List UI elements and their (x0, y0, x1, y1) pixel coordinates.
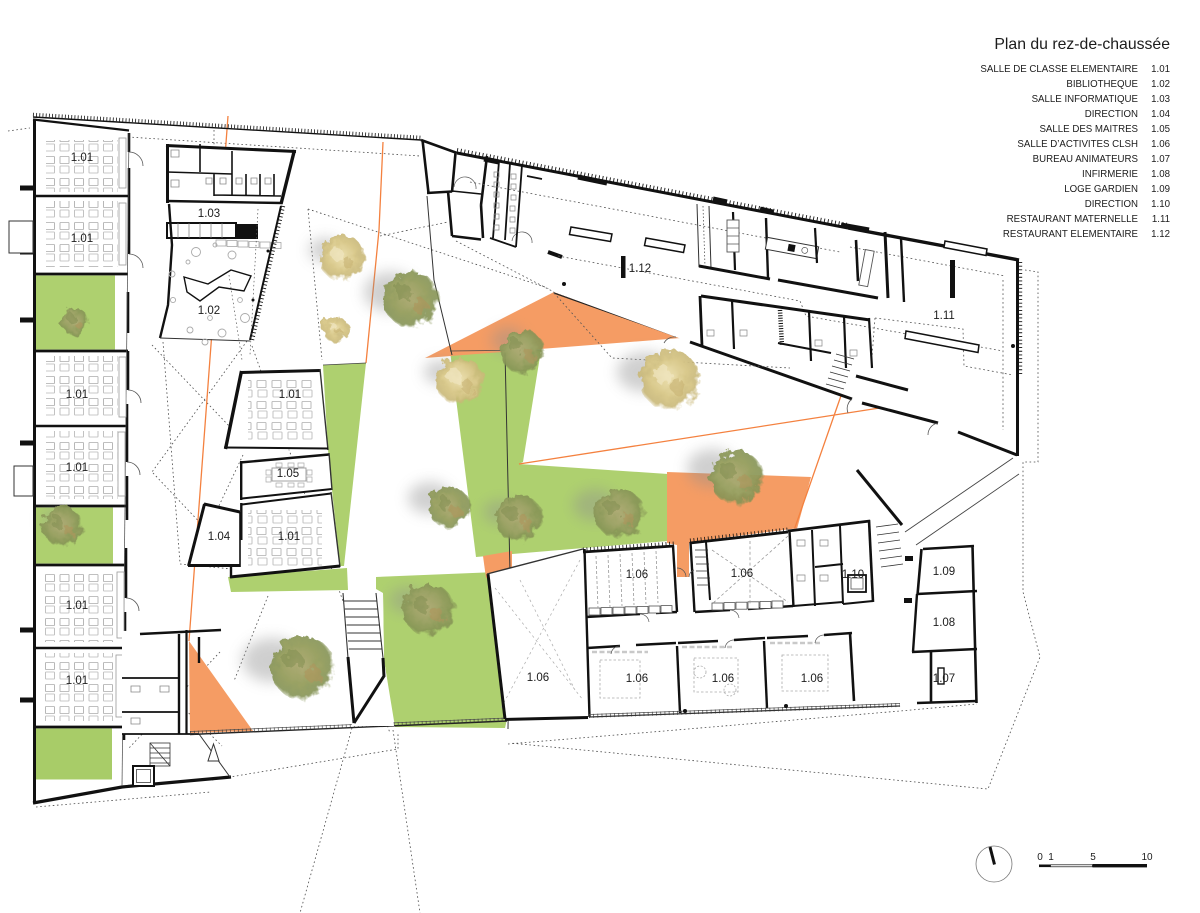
svg-text:1.01: 1.01 (71, 233, 93, 245)
svg-text:1.03: 1.03 (198, 208, 220, 220)
svg-text:1.07: 1.07 (1151, 154, 1170, 165)
svg-text:1.10: 1.10 (842, 569, 864, 581)
svg-text:1.01: 1.01 (66, 600, 88, 612)
svg-text:1.05: 1.05 (277, 468, 299, 480)
svg-text:1.02: 1.02 (1151, 79, 1170, 90)
svg-text:1.10: 1.10 (1151, 199, 1170, 210)
svg-text:1.09: 1.09 (1151, 184, 1170, 195)
svg-text:1.09: 1.09 (933, 566, 955, 578)
svg-text:1.08: 1.08 (933, 617, 955, 629)
svg-text:1.08: 1.08 (1151, 169, 1170, 180)
svg-text:RESTAURANT ELEMENTAIRE: RESTAURANT ELEMENTAIRE (1003, 229, 1139, 240)
svg-text:1: 1 (1048, 852, 1054, 863)
svg-text:1.12: 1.12 (629, 263, 651, 275)
svg-text:1.06: 1.06 (626, 673, 648, 685)
svg-text:INFIRMERIE: INFIRMERIE (1082, 169, 1139, 180)
svg-text:1.01: 1.01 (1151, 64, 1170, 75)
svg-text:BUREAU ANIMATEURS: BUREAU ANIMATEURS (1033, 154, 1139, 165)
svg-text:DIRECTION: DIRECTION (1085, 199, 1138, 210)
svg-text:1.06: 1.06 (731, 568, 753, 580)
svg-text:1.01: 1.01 (278, 531, 300, 543)
svg-text:LOGE GARDIEN: LOGE GARDIEN (1064, 184, 1138, 195)
svg-text:0: 0 (1037, 852, 1043, 863)
svg-text:1.04: 1.04 (208, 531, 231, 543)
svg-text:1.01: 1.01 (66, 675, 88, 687)
svg-text:1.04: 1.04 (1151, 109, 1170, 120)
svg-text:Plan du rez-de-chaussée: Plan du rez-de-chaussée (994, 36, 1170, 53)
svg-text:1.01: 1.01 (279, 389, 301, 401)
svg-text:1.01: 1.01 (66, 389, 88, 401)
svg-text:BIBLIOTHEQUE: BIBLIOTHEQUE (1066, 79, 1138, 90)
svg-text:1.06: 1.06 (1151, 139, 1170, 150)
svg-text:SALLE DE CLASSE ELEMENTAIRE: SALLE DE CLASSE ELEMENTAIRE (980, 64, 1138, 75)
svg-text:RESTAURANT MATERNELLE: RESTAURANT MATERNELLE (1007, 214, 1139, 225)
svg-text:1.02: 1.02 (198, 305, 220, 317)
svg-text:1.05: 1.05 (1151, 124, 1170, 135)
svg-text:SALLE DES MAITRES: SALLE DES MAITRES (1039, 124, 1138, 135)
svg-text:1.06: 1.06 (801, 673, 823, 685)
svg-text:5: 5 (1090, 852, 1096, 863)
svg-text:1.03: 1.03 (1151, 94, 1170, 105)
svg-text:SALLE INFORMATIQUE: SALLE INFORMATIQUE (1032, 94, 1139, 105)
svg-text:1.11: 1.11 (933, 310, 955, 322)
svg-text:DIRECTION: DIRECTION (1085, 109, 1138, 120)
svg-text:1.01: 1.01 (66, 462, 88, 474)
svg-text:1.07: 1.07 (933, 673, 955, 685)
svg-text:1.11: 1.11 (1152, 214, 1170, 225)
svg-text:SALLE D’ACTIVITES CLSH: SALLE D’ACTIVITES CLSH (1017, 139, 1138, 150)
svg-text:1.06: 1.06 (626, 569, 648, 581)
svg-text:10: 10 (1141, 852, 1153, 863)
svg-text:1.06: 1.06 (527, 672, 549, 684)
svg-text:1.12: 1.12 (1151, 229, 1170, 240)
svg-text:1.06: 1.06 (712, 673, 734, 685)
svg-text:1.01: 1.01 (71, 152, 93, 164)
